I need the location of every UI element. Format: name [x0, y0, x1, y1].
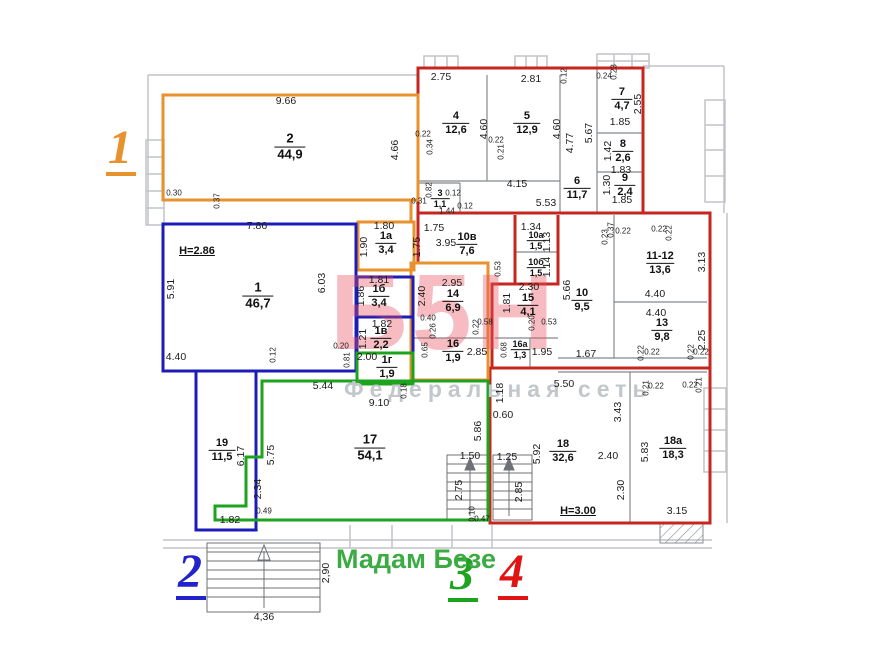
dimension-label: 5.53	[536, 197, 556, 209]
room-label: 1754,1	[354, 433, 385, 464]
dimension-label: 0.49	[256, 507, 272, 516]
dimension-label: 7.86	[247, 220, 267, 232]
dimension-label: 2.81	[521, 73, 541, 85]
dimension-label: 0.47	[474, 515, 490, 524]
room-label: 10в7,6	[456, 231, 477, 257]
dimension-label: 0.20	[528, 315, 537, 331]
dimension-label: 1.13	[541, 232, 553, 252]
room-label: 11-1213,6	[646, 250, 674, 276]
dimension-label: 2.85	[513, 482, 525, 502]
dimension-label: 0.20	[333, 342, 349, 351]
dimension-label: 0.31	[411, 197, 427, 206]
dimension-label: 1.34	[521, 221, 541, 233]
dimension-label: 1.83	[611, 164, 631, 176]
dimension-label: 0.23	[610, 64, 619, 80]
room-label: 1а3,4	[375, 230, 396, 256]
dimension-label: 4.15	[507, 178, 527, 190]
room-label: 1г1,9	[376, 354, 397, 380]
dimension-label: 5.86	[472, 421, 484, 441]
dimension-label: 4.40	[645, 288, 665, 300]
room-label: 1832,6	[549, 438, 576, 464]
dimension-label: 0.21	[695, 377, 704, 393]
dimension-label: 1.75	[411, 237, 423, 257]
dimension-label: 0.60	[493, 409, 513, 421]
dimension-label: 0.37	[607, 222, 616, 238]
dimension-label: 4,36	[254, 611, 274, 623]
dimension-label: 5.67	[583, 123, 595, 143]
dimension-label: 0.22	[693, 348, 709, 357]
dimension-label: 2.30	[519, 281, 539, 293]
dimension-label: 0.22	[665, 225, 674, 241]
ceiling-height-note: H=3.00	[560, 505, 596, 517]
room-label: 139,8	[651, 317, 672, 343]
dimension-label: 0.22	[415, 130, 431, 139]
dimension-label: 1.85	[610, 116, 630, 128]
room-label: 146,7	[242, 281, 273, 312]
dimension-label: 0.18	[400, 383, 409, 399]
dimension-label: 0.22	[615, 227, 631, 236]
dimension-label: 1.50	[460, 450, 480, 462]
dimension-label: 1.67	[576, 348, 596, 360]
room-label: 16а1,3	[511, 339, 530, 361]
dimension-label: 1.82	[220, 514, 240, 526]
dimension-label: 2.40	[416, 286, 428, 306]
ceiling-height-note: H=2.86	[179, 245, 215, 257]
dimension-label: 0.12	[457, 202, 473, 211]
dimension-label: 3.15	[667, 505, 687, 517]
room-label: 412,6	[442, 110, 469, 136]
dimension-label: 1.81	[369, 274, 389, 286]
room-label: 1911,5	[209, 437, 236, 463]
dimension-label: 2.30	[615, 480, 627, 500]
dimension-label: 1.21	[357, 329, 369, 349]
dimension-label: 0.34	[426, 139, 435, 155]
dimension-label: 1.82	[372, 318, 392, 330]
dimension-label: 9.10	[369, 397, 389, 409]
dimension-label: 5.44	[313, 380, 333, 392]
dimension-label: 6.03	[316, 273, 328, 293]
dimension-label: 0.12	[269, 347, 278, 363]
dimension-label: 0.82	[425, 182, 434, 198]
dimension-label: 4.66	[389, 140, 401, 160]
dimension-label: 1.86	[355, 286, 367, 306]
dimension-label: 0.22	[648, 382, 664, 391]
dimension-label: 0.58	[477, 318, 493, 327]
dimension-label: 4.40	[166, 351, 186, 363]
dimension-label: 3.95	[436, 237, 456, 249]
dimension-label: 1.44	[439, 207, 455, 216]
dimension-label: 0.40	[420, 314, 436, 323]
dimension-label: 1.25	[497, 451, 517, 463]
dimension-label: 1.75	[424, 222, 444, 234]
dimension-label: 0.68	[500, 342, 509, 358]
dimension-label: 4.40	[646, 307, 666, 319]
dimension-label: 1.85	[612, 194, 632, 206]
dimension-label: 0.30	[166, 189, 182, 198]
dimension-label: 1.42	[602, 141, 614, 161]
dimension-label: 5.83	[639, 442, 651, 462]
dimension-label: 0.26	[429, 323, 438, 339]
room-label: 161,9	[442, 338, 463, 364]
room-label: 18а18,3	[659, 435, 686, 461]
shop-name-label: Мадам Безе	[336, 544, 496, 575]
room-label: 1б3,4	[368, 283, 389, 309]
room-label: 611,7	[564, 175, 591, 201]
dimension-label: 0.21	[497, 144, 506, 160]
dimension-label: 1.30	[601, 175, 613, 195]
dimension-label: 2.00	[357, 351, 377, 363]
room-label: 146,9	[442, 288, 463, 314]
dimension-label: 2,90	[320, 563, 332, 583]
dimension-label: 0.81	[343, 352, 352, 368]
dimension-label: 1.90	[358, 237, 370, 257]
room-label: 512,9	[513, 110, 540, 136]
dimension-label: 2.75	[431, 71, 451, 83]
dimension-label: 2.34	[252, 479, 264, 499]
dimension-label: 4.77	[564, 133, 576, 153]
dimension-label: 1.80	[374, 220, 394, 232]
dimension-label: 1.81	[501, 293, 513, 313]
dimension-label: 0.22	[644, 348, 660, 357]
dimension-label: 5.92	[531, 444, 543, 464]
dimension-label: 2.85	[467, 346, 487, 358]
dimension-label: 0.65	[421, 342, 430, 358]
dimension-label: 9.66	[276, 95, 296, 107]
unit-number-2: 2	[176, 548, 206, 600]
dimension-label: 1.95	[532, 346, 552, 358]
room-label: 82,6	[612, 138, 633, 164]
dimension-label: 2.40	[598, 450, 618, 462]
dimension-label: 1.18	[494, 383, 506, 403]
dimension-label: 0.37	[213, 193, 222, 209]
dimension-label: 0.12	[445, 189, 461, 198]
room-label: 74,7	[611, 86, 632, 112]
dimension-label: 0.53	[541, 318, 557, 327]
dimension-label: 0.53	[494, 261, 503, 277]
dimension-label: 5.50	[554, 378, 574, 390]
dimension-label: 5.66	[561, 280, 573, 300]
dimension-label: 1.14	[541, 257, 553, 277]
room-label: 244,9	[274, 132, 305, 163]
dimension-label: 5.91	[165, 279, 177, 299]
unit-number-1: 1	[106, 124, 136, 176]
dimension-label: 2.55	[632, 94, 644, 114]
dimension-label: 4.60	[551, 119, 563, 139]
dimension-label: 5.75	[265, 445, 277, 465]
room-label: 109,5	[571, 287, 592, 313]
dimension-label: 6.17	[235, 446, 247, 466]
dimension-label: 0.12	[560, 68, 569, 84]
unit-number-4: 4	[498, 548, 528, 600]
floor-plan: Б5Н Федеральная сеть 244,9146,71а3,41б3,…	[0, 0, 870, 652]
dimension-label: 3.43	[612, 402, 624, 422]
dimension-label: 2.75	[453, 480, 465, 500]
dimension-label: 2.95	[442, 277, 462, 289]
dimension-label: 3.13	[696, 252, 708, 272]
